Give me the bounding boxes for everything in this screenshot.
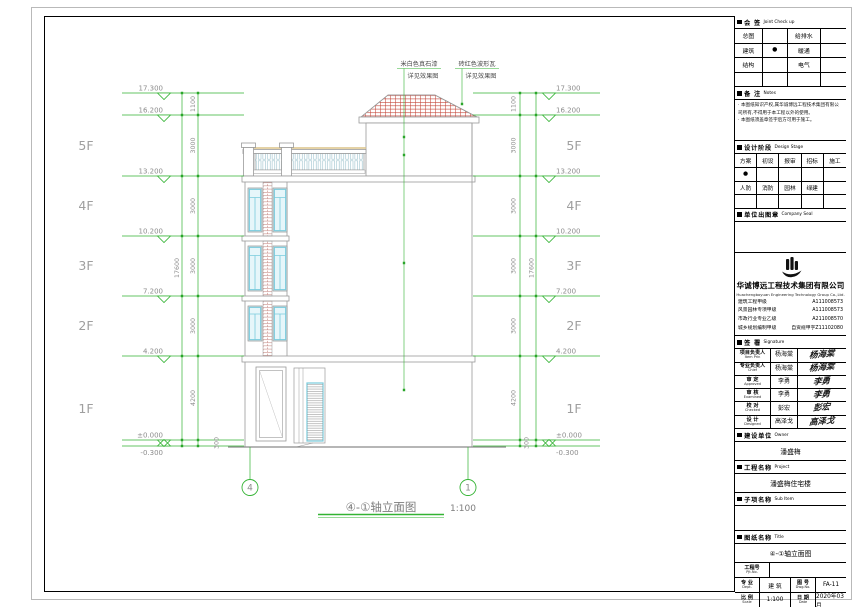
level-label: 4.200 bbox=[143, 348, 163, 356]
material-note: 详见效果图 bbox=[466, 72, 497, 80]
owner-header: 建设单位Owner bbox=[735, 429, 846, 442]
balustrade bbox=[255, 154, 364, 171]
project-number-value bbox=[770, 563, 846, 577]
floor-label: 5F bbox=[78, 138, 93, 153]
floor-label: 2F bbox=[566, 318, 581, 333]
design-stage-table: 方案初设报审招标施工 ● 人防消防园林绿建 bbox=[735, 154, 846, 208]
name-cell: 杨海棠 bbox=[771, 363, 798, 376]
window bbox=[248, 306, 262, 341]
joint-check-table: 总图给排水 建筑●暖通 结构电气 bbox=[735, 29, 846, 87]
project-number-row: 工程号Pjt.No. bbox=[735, 563, 846, 578]
joint-cell: 总图 bbox=[735, 29, 763, 44]
elevation-drawing: 17.300 16.200 13.200 10.200 7.200 4.200 … bbox=[44, 16, 734, 592]
scale-value: 1:100 bbox=[760, 593, 791, 607]
section-marker-icon bbox=[737, 497, 742, 502]
floor-band-13200 bbox=[242, 176, 475, 182]
role-cell: 专业负责人Chief bbox=[735, 363, 771, 376]
signature-cell: 杨海棠 bbox=[798, 349, 846, 362]
qual-code: A211008570 bbox=[812, 316, 843, 325]
level-triangles-right bbox=[543, 93, 556, 447]
roller-shutter-door bbox=[294, 368, 325, 447]
title-block: 会 签Joint Check up 总图给排水 建筑●暖通 结构电气 备 注No… bbox=[734, 16, 846, 592]
parapet-top-rail bbox=[243, 150, 366, 154]
qual-label: 城乡规划编制甲级 bbox=[738, 325, 776, 334]
section-marker-icon bbox=[737, 340, 742, 345]
joint-cell bbox=[763, 58, 788, 73]
joint-cell: 结构 bbox=[735, 58, 763, 73]
joint-cell bbox=[763, 73, 788, 87]
stage-cell bbox=[824, 182, 846, 196]
dept-label: 专 业Dept. bbox=[735, 578, 760, 593]
joint-check-cn: 会 签 bbox=[744, 18, 761, 27]
name-cell: 高泽戈 bbox=[771, 416, 798, 428]
handwritten-signature: 李勇 bbox=[813, 377, 830, 387]
floor-band-10200 bbox=[242, 236, 289, 241]
role-cell: 项目负责人Item Prin bbox=[735, 349, 771, 362]
signature-cell: 李勇 bbox=[798, 376, 846, 389]
dwg-title-en: Title bbox=[775, 535, 784, 540]
stage-cell bbox=[824, 195, 846, 208]
dim-label: 3000 bbox=[190, 137, 197, 153]
signature-cn: 签 署 bbox=[744, 338, 761, 347]
dim-label: 3000 bbox=[190, 198, 197, 214]
signature-cell: 杨海棠 bbox=[798, 363, 846, 376]
qualification-row: 建筑工程甲级A111008573 bbox=[738, 299, 843, 308]
floor-label: 4F bbox=[78, 198, 93, 213]
project-cn: 工程名称 bbox=[744, 463, 772, 472]
company-seal-header: 单位出图章Company Seal bbox=[735, 209, 846, 222]
person-name: 李勇 bbox=[778, 379, 790, 385]
joint-cell bbox=[788, 73, 821, 87]
qualification-row: 市政行业专业乙级A211008570 bbox=[738, 316, 843, 325]
joint-cell: 建筑 bbox=[735, 44, 763, 59]
dim-label: 3000 bbox=[190, 258, 197, 274]
joint-check-header: 会 签Joint Check up bbox=[735, 16, 846, 29]
signature-cell: 彭宏 bbox=[798, 402, 846, 415]
stage-cell bbox=[802, 195, 824, 208]
dim-label: 3000 bbox=[511, 198, 518, 214]
subitem-value bbox=[735, 506, 846, 531]
section-marker-icon bbox=[737, 20, 742, 25]
drawing-sheet: 17.300 16.200 13.200 10.200 7.200 4.200 … bbox=[0, 0, 860, 607]
dim-total: 17600 bbox=[174, 258, 181, 278]
note-item: · 本图纸知识产权,属华诚博远工程技术集团有限公司所有,不得用于本工程以外的使用… bbox=[738, 102, 843, 117]
date-value: 2020年03月 bbox=[816, 593, 846, 607]
subitem-en: Sub Item bbox=[775, 497, 794, 502]
floor-label: 4F bbox=[566, 198, 581, 213]
signature-cell: 高泽戈 bbox=[798, 416, 846, 428]
axis-number: 1 bbox=[465, 484, 471, 494]
name-cell: 李勇 bbox=[771, 376, 798, 389]
role-cell: 审 定Approved bbox=[735, 376, 771, 389]
dim-label: 4200 bbox=[190, 390, 197, 406]
material-note: 砖红色波形瓦 bbox=[458, 60, 495, 68]
notes-header: 备 注Notes bbox=[735, 87, 846, 100]
stage-cell: ● bbox=[735, 168, 757, 182]
bottom-info-table: 专 业Dept. 建 筑 图 号Dwg.No. FA-11 比 例Scale 1… bbox=[735, 578, 846, 607]
stage-cell bbox=[735, 195, 757, 208]
notes-body: · 本图纸知识产权,属华诚博远工程技术集团有限公司所有,不得用于本工程以外的使用… bbox=[735, 100, 846, 141]
signature-cell: 李勇 bbox=[798, 389, 846, 402]
dim-label: 1100 bbox=[190, 96, 197, 112]
material-note: 详见效果图 bbox=[408, 72, 439, 80]
qualification-row: 风景园林专项甲级A111008573 bbox=[738, 307, 843, 316]
floor-label: 2F bbox=[78, 318, 93, 333]
role-en: Approved bbox=[744, 383, 761, 387]
stage-cell: 初设 bbox=[757, 154, 779, 168]
joint-cell: 暖通 bbox=[788, 44, 821, 59]
date-label: 日 期Date bbox=[791, 593, 816, 607]
handwritten-signature: 杨海棠 bbox=[809, 363, 835, 374]
material-note: 米白色真石漆 bbox=[400, 60, 437, 68]
dwg-title-header: 图纸名称Title bbox=[735, 531, 846, 544]
qual-label: 建筑工程甲级 bbox=[738, 299, 767, 308]
section-marker-icon bbox=[737, 535, 742, 540]
section-marker-icon bbox=[737, 433, 742, 438]
axis-leaders bbox=[250, 447, 468, 479]
joint-cell bbox=[821, 73, 846, 87]
window bbox=[273, 246, 287, 291]
name-cell: 李勇 bbox=[771, 389, 798, 402]
dim-label: 300 bbox=[524, 437, 531, 449]
role-en: Designed bbox=[744, 423, 760, 427]
company-seal-cn: 单位出图章 bbox=[744, 210, 779, 219]
person-name: 杨海棠 bbox=[775, 352, 793, 358]
owner-cn: 建设单位 bbox=[744, 431, 772, 440]
handwritten-signature: 彭宏 bbox=[813, 404, 830, 414]
dim-label: 4200 bbox=[511, 390, 518, 406]
company-name: 华诚博远工程技术集团有限公司 bbox=[737, 280, 845, 291]
joint-cell bbox=[735, 73, 763, 87]
dim-label: 3000 bbox=[511, 137, 518, 153]
date-en: Date bbox=[799, 601, 807, 605]
axis-number: 4 bbox=[247, 484, 253, 494]
project-en: Project bbox=[775, 465, 790, 470]
stage-cell: 人防 bbox=[735, 182, 757, 196]
dim-label: 300 bbox=[214, 437, 221, 449]
stage-cell: 绿建 bbox=[802, 182, 824, 196]
stage-cell: 园林 bbox=[779, 182, 801, 196]
parapet-post bbox=[282, 148, 292, 177]
qual-label: 风景园林专项甲级 bbox=[738, 307, 776, 316]
scale-en: Scale bbox=[742, 601, 751, 605]
level-label: ±0.000 bbox=[556, 432, 582, 440]
floor-band-7200 bbox=[242, 296, 289, 301]
dwg-no-label: 图 号Dwg.No. bbox=[791, 578, 816, 593]
penthouse-wall bbox=[366, 123, 472, 176]
window bbox=[248, 246, 262, 291]
section-marker-icon bbox=[737, 465, 742, 470]
note-item: · 本图纸须盖章签字后方可用于施工。 bbox=[738, 117, 843, 124]
parapet-bottom-rail bbox=[253, 170, 365, 174]
level-label: 16.200 bbox=[139, 107, 164, 115]
owner-value: 潘盛梅 bbox=[735, 442, 846, 461]
project-header: 工程名称Project bbox=[735, 461, 846, 474]
floor-label: 3F bbox=[566, 258, 581, 273]
handwritten-signature: 杨海棠 bbox=[809, 350, 835, 361]
dim-label: 3000 bbox=[190, 318, 197, 334]
dwg-title-cn: 图纸名称 bbox=[744, 533, 772, 542]
project-number-label: 工程号Pjt.No. bbox=[735, 563, 770, 577]
stage-cell bbox=[802, 168, 824, 182]
dwg-title-value: ④-①轴立面图 bbox=[735, 544, 846, 563]
subitem-cn: 子项名称 bbox=[744, 495, 772, 504]
company-block: 华诚博远工程技术集团有限公司 Huachengboyuan Engineerin… bbox=[735, 253, 846, 337]
level-label: 13.200 bbox=[139, 168, 164, 176]
roof-eave-band bbox=[359, 117, 479, 123]
parapet-post bbox=[244, 148, 254, 177]
role-en: Checked bbox=[745, 409, 760, 413]
role-en: Item Prin bbox=[745, 356, 761, 360]
company-seal-en: Company Seal bbox=[782, 212, 813, 217]
stage-cell bbox=[757, 168, 779, 182]
level-label: 17.300 bbox=[139, 85, 164, 93]
qual-code: A111008573 bbox=[812, 307, 843, 316]
dept-en: Dept. bbox=[742, 586, 752, 590]
level-label: 10.200 bbox=[139, 228, 164, 236]
person-name: 杨海棠 bbox=[775, 366, 793, 372]
dept-value: 建 筑 bbox=[760, 578, 791, 593]
name-cell: 彭宏 bbox=[771, 402, 798, 415]
drawing-scale: 1:100 bbox=[450, 504, 476, 514]
dim-total: 17600 bbox=[529, 258, 536, 278]
company-seal-space bbox=[735, 222, 846, 253]
window bbox=[273, 188, 287, 232]
stage-cell bbox=[779, 195, 801, 208]
dimension-lines bbox=[122, 69, 600, 518]
joint-cell: 电气 bbox=[788, 58, 821, 73]
company-logo-icon bbox=[778, 256, 804, 280]
pjt-en: Pjt.No. bbox=[746, 571, 757, 575]
dim-label: 1100 bbox=[511, 96, 518, 112]
project-value: 潘盛梅住宅楼 bbox=[735, 474, 846, 493]
brick-pier bbox=[263, 301, 272, 356]
notes-cn: 备 注 bbox=[744, 89, 761, 98]
joint-cell: 给排水 bbox=[788, 29, 821, 44]
level-label: 4.200 bbox=[556, 348, 576, 356]
person-name: 彭宏 bbox=[778, 406, 790, 412]
name-cell: 杨海棠 bbox=[771, 349, 798, 362]
section-marker-icon bbox=[737, 91, 742, 96]
level-triangles-left bbox=[158, 93, 171, 447]
joint-cell bbox=[821, 29, 846, 44]
joint-cell bbox=[821, 44, 846, 59]
owner-en: Owner bbox=[775, 433, 789, 438]
stage-cell bbox=[824, 168, 846, 182]
stage-cell: 方案 bbox=[735, 154, 757, 168]
joint-check-en: Joint Check up bbox=[764, 20, 795, 25]
floor-band-4200 bbox=[242, 356, 475, 362]
design-stage-cn: 设计阶段 bbox=[744, 143, 772, 152]
stage-cell bbox=[779, 168, 801, 182]
company-name-en: Huachengboyuan Engineering Technology Gr… bbox=[736, 292, 844, 297]
level-label: 7.200 bbox=[143, 288, 163, 296]
qual-code: A111008573 bbox=[812, 299, 843, 308]
dim-label: 3000 bbox=[511, 258, 518, 274]
roof-tiles bbox=[361, 95, 477, 117]
stage-cell bbox=[757, 195, 779, 208]
level-label: 10.200 bbox=[556, 228, 581, 236]
section-marker-icon bbox=[737, 212, 742, 217]
dimension-dots bbox=[181, 92, 537, 447]
parapet-post-cap bbox=[242, 143, 256, 148]
handwritten-signature: 李勇 bbox=[813, 390, 830, 400]
signature-en: Signature bbox=[764, 340, 785, 345]
parapet-post-cap bbox=[280, 143, 294, 148]
role-en: Chief bbox=[748, 369, 757, 373]
window bbox=[248, 188, 262, 232]
level-label: 17.300 bbox=[556, 85, 581, 93]
subitem-header: 子项名称Sub Item bbox=[735, 493, 846, 506]
qual-label: 市政行业专业乙级 bbox=[738, 316, 776, 325]
entry-door bbox=[256, 367, 286, 441]
joint-cell: ● bbox=[763, 44, 788, 59]
level-label: 7.200 bbox=[556, 288, 576, 296]
dwg-no-value: FA-11 bbox=[816, 578, 846, 593]
qualification-row: 城乡规划编制甲级自资规甲字Z11102080 bbox=[738, 325, 843, 334]
floor-label: 1F bbox=[566, 401, 581, 416]
level-label: ±0.000 bbox=[137, 432, 163, 440]
handwritten-signature: 高泽戈 bbox=[809, 416, 835, 427]
brick-pier bbox=[263, 241, 272, 296]
window bbox=[273, 306, 287, 341]
stage-cell: 招标 bbox=[802, 154, 824, 168]
level-label: -0.300 bbox=[140, 449, 163, 457]
person-name: 高泽戈 bbox=[775, 419, 793, 425]
person-name: 李勇 bbox=[778, 392, 790, 398]
qual-code: 自资规甲字Z11102080 bbox=[791, 325, 843, 334]
level-label: -0.300 bbox=[556, 449, 579, 457]
stage-cell: 报审 bbox=[779, 154, 801, 168]
floor-label: 3F bbox=[78, 258, 93, 273]
signature-table: 项目负责人Item Prin 杨海棠 杨海棠 专业负责人Chief 杨海棠 杨海… bbox=[735, 349, 846, 429]
role-cell: 设 计Designed bbox=[735, 416, 771, 428]
level-label: 13.200 bbox=[556, 168, 581, 176]
dim-label: 3000 bbox=[511, 318, 518, 334]
stage-cell: 消防 bbox=[757, 182, 779, 196]
role-cell: 审 核Examined bbox=[735, 389, 771, 402]
floor-label: 5F bbox=[566, 138, 581, 153]
joint-cell bbox=[763, 29, 788, 44]
notes-en: Notes bbox=[764, 91, 776, 96]
building-outline bbox=[228, 95, 506, 447]
floor-label: 1F bbox=[78, 401, 93, 416]
brick-pier bbox=[263, 182, 272, 236]
section-marker-icon bbox=[737, 145, 742, 150]
scale-label: 比 例Scale bbox=[735, 593, 760, 607]
joint-cell bbox=[821, 58, 846, 73]
design-stage-header: 设计阶段Design Stage bbox=[735, 141, 846, 154]
dwg-no-en: Dwg.No. bbox=[796, 586, 811, 590]
level-label: 16.200 bbox=[556, 107, 581, 115]
role-cell: 校 对Checked bbox=[735, 402, 771, 415]
signature-header: 签 署Signature bbox=[735, 336, 846, 349]
role-en: Examined bbox=[744, 396, 761, 400]
drawing-title: ④-①轴立面图 bbox=[346, 500, 417, 514]
stage-cell: 施工 bbox=[824, 154, 846, 168]
design-stage-en: Design Stage bbox=[775, 145, 804, 150]
